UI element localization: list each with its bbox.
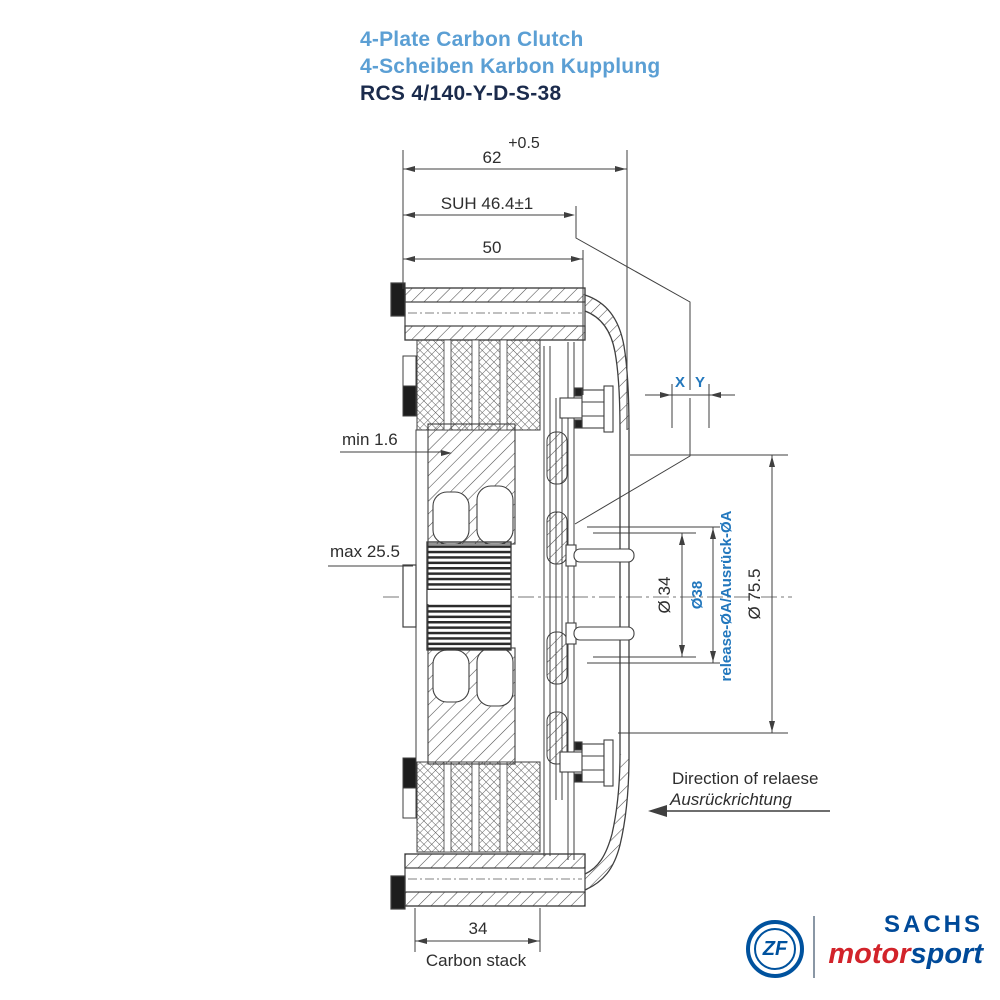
release-dia-label: release-ØA/Ausrück-ØA	[718, 510, 735, 681]
overall-width-label: 62	[483, 148, 502, 167]
zf-logo-inner-ring: ZF	[754, 928, 796, 970]
brand-logo-block: ZF SACHS motorsport	[740, 910, 985, 985]
motor-wordmark-part: motor	[828, 938, 910, 970]
sachs-wordmark: SACHS	[825, 912, 983, 938]
motorsport-wordmark: motorsport	[825, 939, 983, 969]
drive-strap-channel	[416, 430, 428, 762]
release-pins	[566, 545, 634, 644]
pressure-plate-top	[428, 424, 515, 544]
clutch-cover	[585, 295, 629, 890]
carbon-stack-value: 34	[469, 919, 488, 938]
dia-75-5-label: Ø 75.5	[745, 568, 764, 619]
width-50-label: 50	[483, 238, 502, 257]
carbon-stack-caption: Carbon stack	[426, 951, 527, 970]
direction-english-label: Direction of relaese	[672, 769, 818, 788]
dia-38-label: Ø38	[689, 581, 706, 609]
logo-separator	[813, 916, 815, 978]
diaphragm-plate-stack	[544, 342, 574, 860]
direction-of-release: Direction of relaese Ausrückrichtung	[648, 769, 830, 817]
dia-34-label: Ø 34	[655, 577, 674, 614]
sachs-motorsport-wordmark: SACHS motorsport	[825, 912, 983, 969]
leader-lines	[575, 206, 690, 524]
dimension-suh: SUH 46.4±1	[403, 194, 575, 218]
max-travel-label: max 25.5	[330, 542, 400, 561]
flywheel-ring-top	[391, 283, 585, 340]
y-gap-label: Y	[695, 374, 705, 391]
sport-wordmark-part: sport	[911, 938, 984, 970]
callout-max-travel: max 25.5	[328, 542, 413, 566]
zf-logo-letters: ZF	[763, 938, 787, 961]
pressure-plate-bottom	[428, 648, 515, 764]
release-direction-arrow	[648, 805, 667, 817]
suh-label: SUH 46.4±1	[441, 194, 534, 213]
dimension-carbon-stack: 34 Carbon stack	[415, 908, 540, 970]
carbon-stack-bottom	[403, 758, 540, 852]
x-gap-label: X	[675, 374, 685, 391]
clutch-technical-drawing: +0.5 62 SUH 46.4±1 50 X Y Ø 34	[0, 0, 1000, 1000]
min-wear-label: min 1.6	[342, 430, 398, 449]
tolerance-label: +0.5	[508, 135, 540, 152]
zf-logo: ZF	[746, 920, 804, 978]
flywheel-ring-bottom	[391, 854, 585, 909]
carbon-stack-top	[403, 340, 540, 430]
direction-german-label: Ausrückrichtung	[669, 790, 792, 809]
